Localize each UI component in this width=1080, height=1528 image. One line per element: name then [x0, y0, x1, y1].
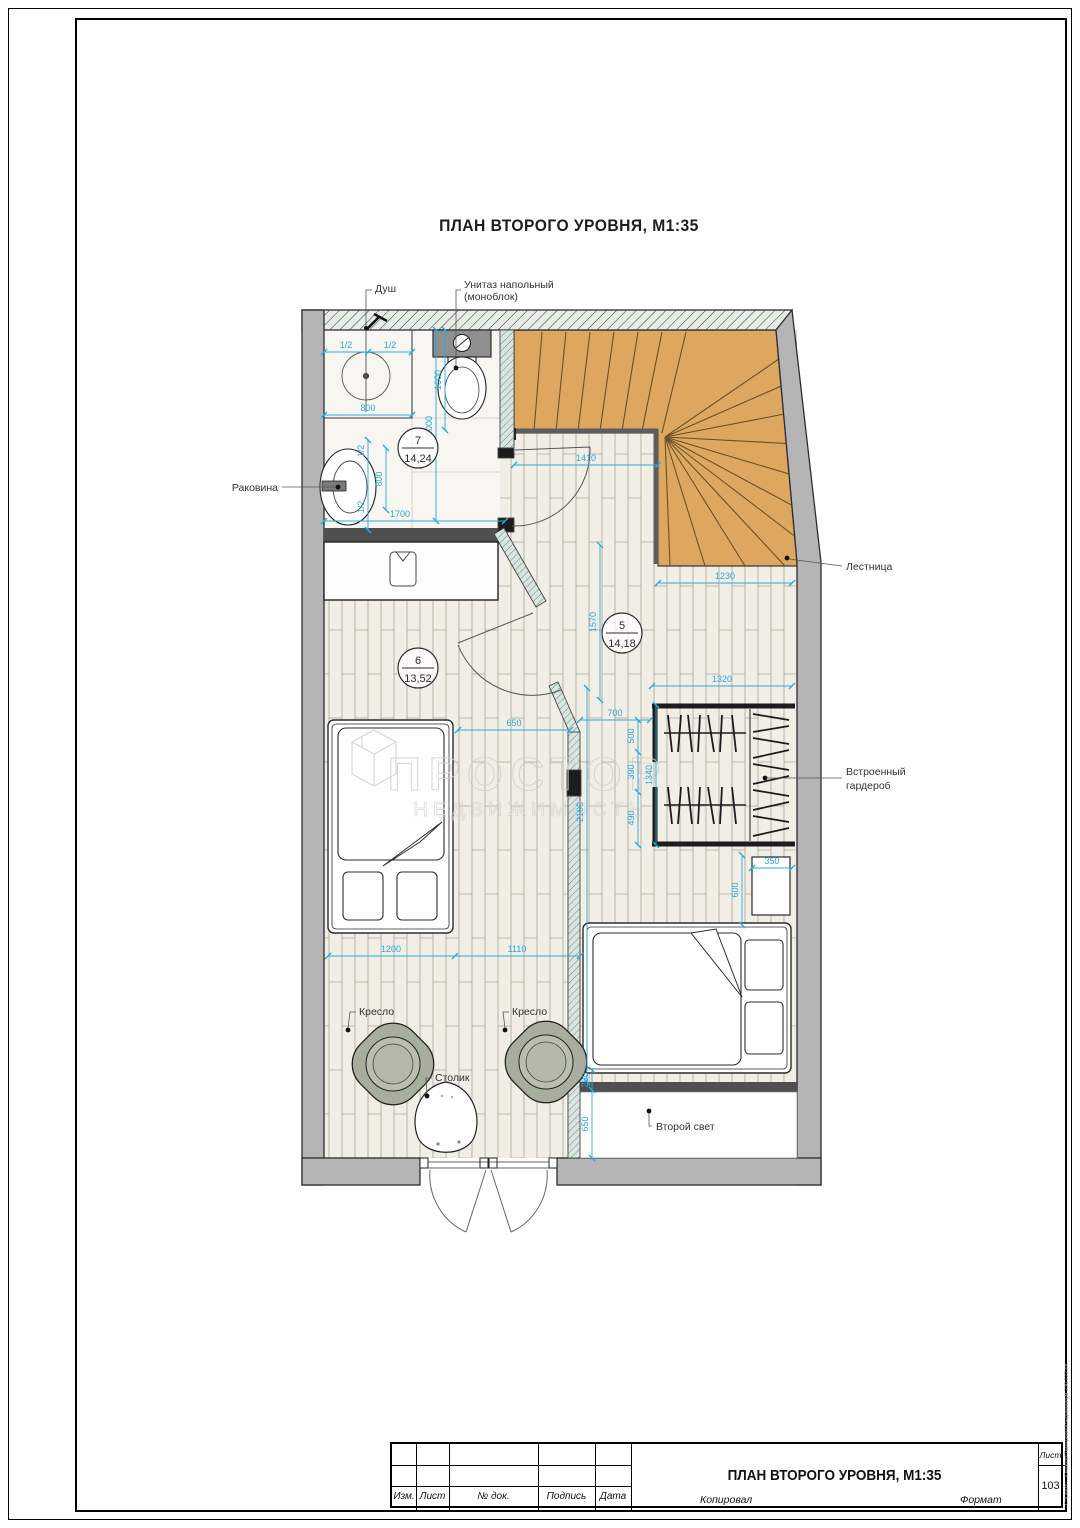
dim-800: 800 — [360, 403, 375, 413]
dim-2100: 2100 — [575, 802, 585, 822]
label-wardrobe-2: гардероб — [846, 780, 891, 792]
dim-650-bed: 650 — [506, 718, 521, 728]
room-stamp-7: 7 14,24 — [398, 428, 438, 468]
dim-1700: 1700 — [390, 509, 410, 519]
room-area: 14,18 — [608, 638, 636, 650]
dim-shower-half-right: 1/2 — [384, 340, 397, 350]
dim-700: 700 — [607, 708, 622, 718]
tb-data: Дата — [595, 1486, 631, 1507]
room-area: 14,24 — [404, 453, 432, 465]
dim-1320: 1320 — [712, 674, 732, 684]
kopiroval-note: Копировал — [700, 1494, 752, 1506]
tb-list: Лист — [416, 1486, 449, 1507]
label-toilet-2: (моноблок) — [464, 291, 518, 303]
balcony-doors — [420, 1158, 557, 1232]
label-toilet-1: Унитаз напольный — [464, 279, 554, 291]
format-note: Формат — [960, 1494, 1002, 1506]
bed-right — [583, 923, 791, 1073]
room-area: 13,52 — [404, 673, 432, 685]
tb-sheet-number: 103 — [1038, 1465, 1063, 1506]
dim-1200: 1200 — [381, 944, 401, 954]
dim-sink-800: 800 — [374, 471, 384, 486]
room-stamp-6: 6 13,52 — [398, 648, 438, 688]
dim-390: 390 — [626, 764, 636, 779]
dim-600: 600 — [730, 882, 740, 897]
label-stairs: Лестница — [846, 561, 892, 573]
label-armchair-right: Кресло — [512, 1006, 547, 1018]
watermark-subtitle: НЕДВИЖИМОСТЬ — [413, 799, 646, 821]
label-wardrobe-1: Встроенный — [846, 766, 906, 778]
dim-200: 200 — [580, 1072, 590, 1087]
dim-490: 490 — [626, 810, 636, 825]
dim-1410: 1410 — [576, 453, 596, 463]
label-table: Столик — [435, 1072, 470, 1084]
label-shower: Душ — [375, 283, 396, 295]
dim-1000: 1000 — [433, 370, 443, 390]
dim-350: 350 — [764, 856, 779, 866]
room-stamp-5: 5 14,18 — [602, 613, 642, 653]
shirt-icon — [390, 552, 416, 586]
dim-1110: 1110 — [508, 944, 527, 954]
dim-500: 500 — [626, 728, 636, 743]
dim-650-void: 650 — [580, 1116, 590, 1131]
dim-sink-half-top: 1/2 — [356, 445, 366, 458]
tb-podpis: Подпись — [538, 1486, 595, 1507]
dim-sink-half-bottom: 1/2 — [356, 501, 366, 514]
floor-plan: ПРОСТОР НЕДВИЖИМОСТЬ — [215, 275, 915, 1250]
dim-1340: 1340 — [644, 765, 654, 785]
room-number: 7 — [415, 435, 421, 447]
drawing-sheet: ПЛАН ВТОРОГО УРОВНЯ, М1:35 — [0, 0, 1080, 1528]
room-number: 5 — [619, 620, 625, 632]
dim-shower-half-left: 1/2 — [340, 340, 353, 350]
dim-1230: 1230 — [715, 571, 735, 581]
label-second-light: Второй свет — [656, 1121, 715, 1133]
tb-doc: № док. — [449, 1486, 538, 1507]
tb-sheet-label: Лист — [1038, 1444, 1063, 1465]
dim-1570: 1570 — [588, 612, 598, 632]
room-number: 6 — [415, 655, 421, 667]
closet — [324, 542, 498, 600]
page-title: ПЛАН ВТОРОГО УРОВНЯ, М1:35 — [115, 216, 1024, 236]
label-sink: Раковина — [232, 482, 278, 494]
file-path-note: C:\Users\...\Desktop\Тамерлан\Кондоминиу… — [1064, 1365, 1070, 1505]
label-armchair-left: Кресло — [359, 1006, 394, 1018]
tb-izm: Изм. — [392, 1486, 416, 1507]
